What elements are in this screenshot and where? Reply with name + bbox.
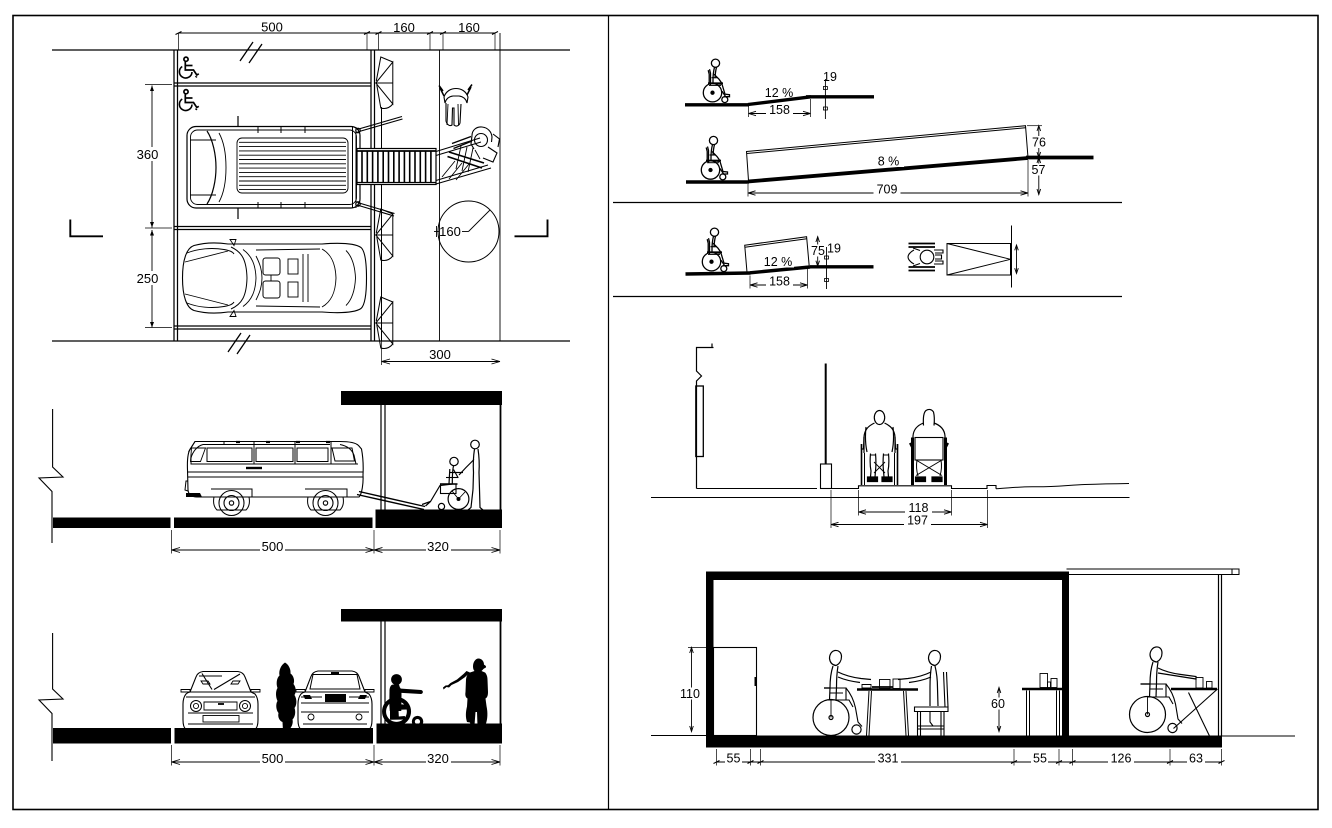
svg-text:158: 158 [769,274,790,288]
svg-text:331: 331 [878,752,899,766]
svg-text:12 %: 12 % [764,255,793,269]
svg-text:160: 160 [393,20,415,35]
svg-text:709: 709 [877,183,898,197]
svg-text:12 %: 12 % [765,86,794,100]
svg-text:320: 320 [427,751,449,766]
svg-text:500: 500 [262,539,284,554]
svg-text:55: 55 [727,752,741,766]
svg-text:500: 500 [261,20,283,35]
svg-text:197: 197 [907,514,928,528]
svg-text:60: 60 [991,697,1005,711]
svg-text:19: 19 [823,70,837,84]
svg-text:320: 320 [427,539,449,554]
svg-text:158: 158 [769,103,790,117]
svg-text:75: 75 [811,244,825,258]
svg-text:19: 19 [827,242,841,256]
svg-text:126: 126 [1111,752,1132,766]
svg-text:360: 360 [137,147,159,162]
svg-text:300: 300 [429,347,451,362]
svg-text:500: 500 [262,751,284,766]
svg-text:110: 110 [680,687,700,701]
svg-text:55: 55 [1033,752,1047,766]
svg-text:63: 63 [1189,752,1203,766]
svg-text:160: 160 [439,224,461,239]
svg-text:57: 57 [1032,163,1046,177]
svg-text:8 %: 8 % [878,155,900,169]
svg-text:250: 250 [137,271,159,286]
svg-text:160: 160 [458,20,480,35]
svg-text:76: 76 [1032,136,1046,150]
